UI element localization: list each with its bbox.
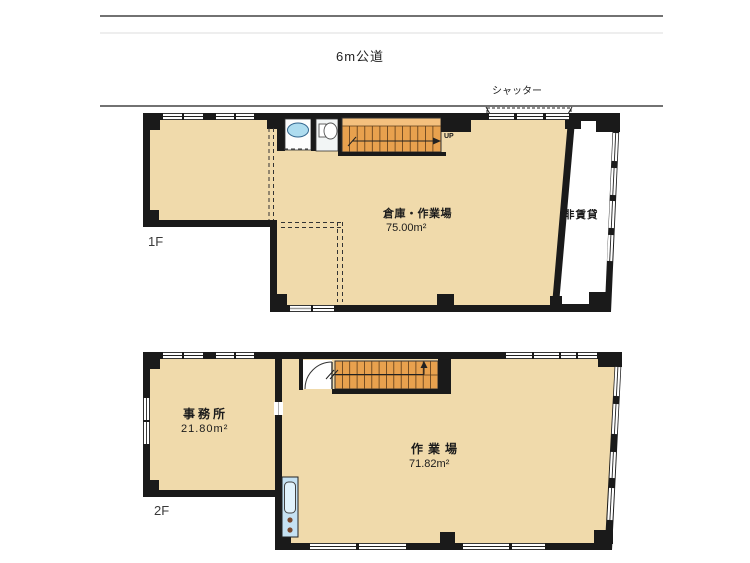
room-area-warehouse: 75.00m² xyxy=(386,222,426,234)
office-door-opening xyxy=(274,402,283,415)
room-area-workshop: 71.82m² xyxy=(409,458,449,470)
wall xyxy=(338,113,342,152)
room-label-warehouse: 倉庫・作業場 xyxy=(383,208,452,220)
floorplan-page: 6m公道 シャッター 倉庫・作業場 75.00m² 非賃貸 1F UP 事務所 … xyxy=(0,0,750,563)
floorplan-drawing xyxy=(0,0,750,563)
sink-icon xyxy=(285,119,311,150)
floor1-label: 1F xyxy=(148,235,163,249)
stairs-up-label: UP xyxy=(444,133,454,141)
office-divider-wall xyxy=(275,359,282,497)
door-arc-icon xyxy=(303,360,332,389)
floor2-plan xyxy=(143,352,622,550)
nonrental-label: 非賃貸 xyxy=(564,210,599,222)
wall xyxy=(311,113,316,151)
road-label: 6m公道 xyxy=(336,50,384,64)
wall xyxy=(299,359,303,390)
floor1-plan xyxy=(143,113,620,312)
floor2-label: 2F xyxy=(154,504,169,518)
shutter-label: シャッター xyxy=(492,86,542,97)
toilet-icon xyxy=(316,119,338,151)
room-label-workshop: 作業場 xyxy=(411,443,462,456)
room-label-office: 事務所 xyxy=(183,408,228,421)
wall xyxy=(277,113,285,151)
room-area-office: 21.80m² xyxy=(181,423,228,435)
mini-kitchen-icon xyxy=(282,477,298,537)
shutter-range-indicator xyxy=(486,107,572,114)
